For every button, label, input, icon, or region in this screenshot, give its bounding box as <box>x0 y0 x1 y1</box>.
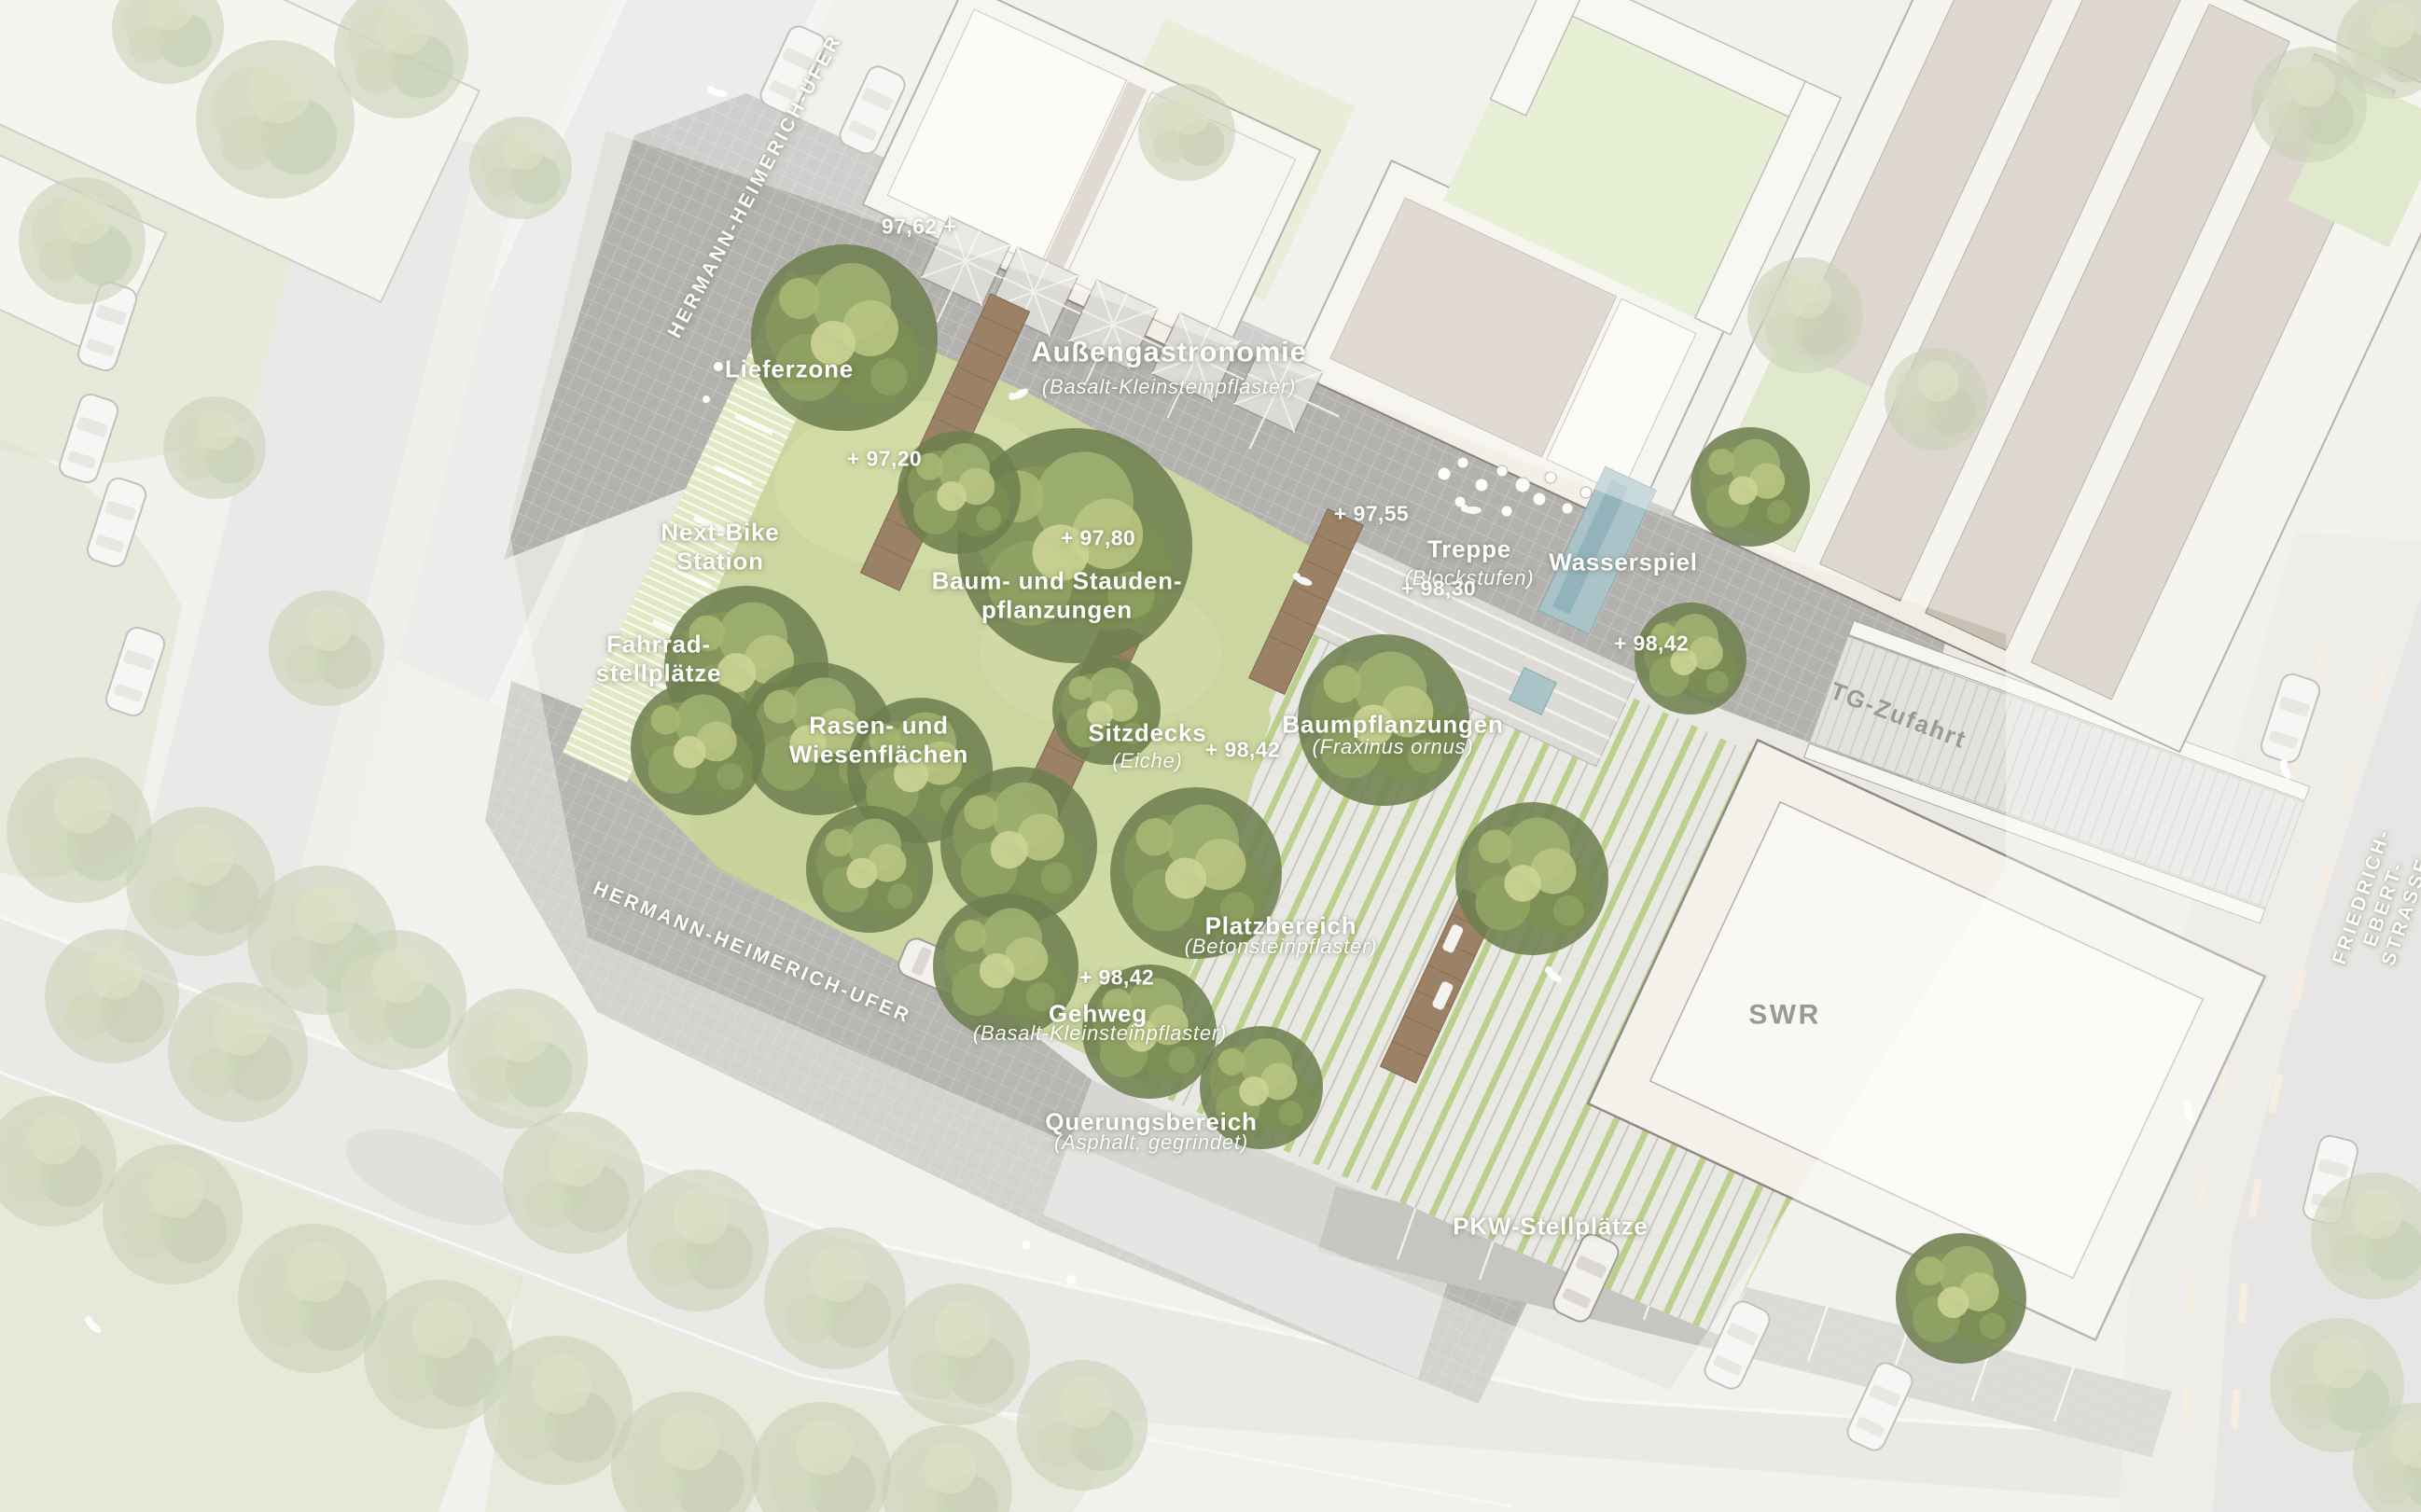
zone-label-fahrrad: Fahrrad- stellplätze <box>596 630 722 687</box>
zone-label-sitzdecks: Sitzdecks <box>1088 719 1206 748</box>
zone-label-pkw: PKW-Stellplätze <box>1453 1213 1648 1242</box>
zone-label-treppe: Treppe <box>1427 535 1511 564</box>
elevation-97-80: + 97,80 <box>1061 525 1135 550</box>
zone-sublabel-gehweg: (Basalt-Kleinsteinpflaster) <box>973 1021 1227 1046</box>
elevation-98-42-c: + 98,42 <box>1079 964 1154 990</box>
zone-label-baumstauden: Baum- und Stauden- pflanzungen <box>932 566 1183 623</box>
elevation-98-30: + 98,30 <box>1401 576 1476 601</box>
zone-label-rasen: Rasen- und Wiesenflächen <box>789 711 968 768</box>
zone-label-wasserspiel: Wasserspiel <box>1549 548 1698 577</box>
zone-sublabel-querung: (Asphalt, gegrindet) <box>1054 1131 1248 1155</box>
zone-label-nextbike: Next-Bike Station <box>661 518 779 575</box>
site-plan: 97,62 + Lieferzone Außengastronomie (Bas… <box>0 0 2421 1512</box>
elevation-98-42-a: + 98,42 <box>1614 631 1689 656</box>
elevation-97-20: + 97,20 <box>847 446 922 471</box>
elevation-97-62: 97,62 + <box>882 214 956 239</box>
zone-sublabel-baumpflanzungen: (Fraxinus ornus) <box>1313 735 1474 759</box>
zone-sublabel-sitzdecks: (Eiche) <box>1112 749 1182 773</box>
elevation-97-55: + 97,55 <box>1334 501 1409 526</box>
elevation-98-42-b: + 98,42 <box>1205 737 1280 762</box>
zone-sublabel-aussengastronomie: (Basalt-Kleinsteinpflaster) <box>1042 375 1296 399</box>
zone-label-aussengastronomie: Außengastronomie <box>1031 336 1306 370</box>
building-label-swr: SWR <box>1748 998 1821 1031</box>
zone-label-lieferzone: Lieferzone <box>725 355 854 384</box>
zone-sublabel-platzbereich: (Betonsteinpflaster) <box>1185 935 1378 959</box>
